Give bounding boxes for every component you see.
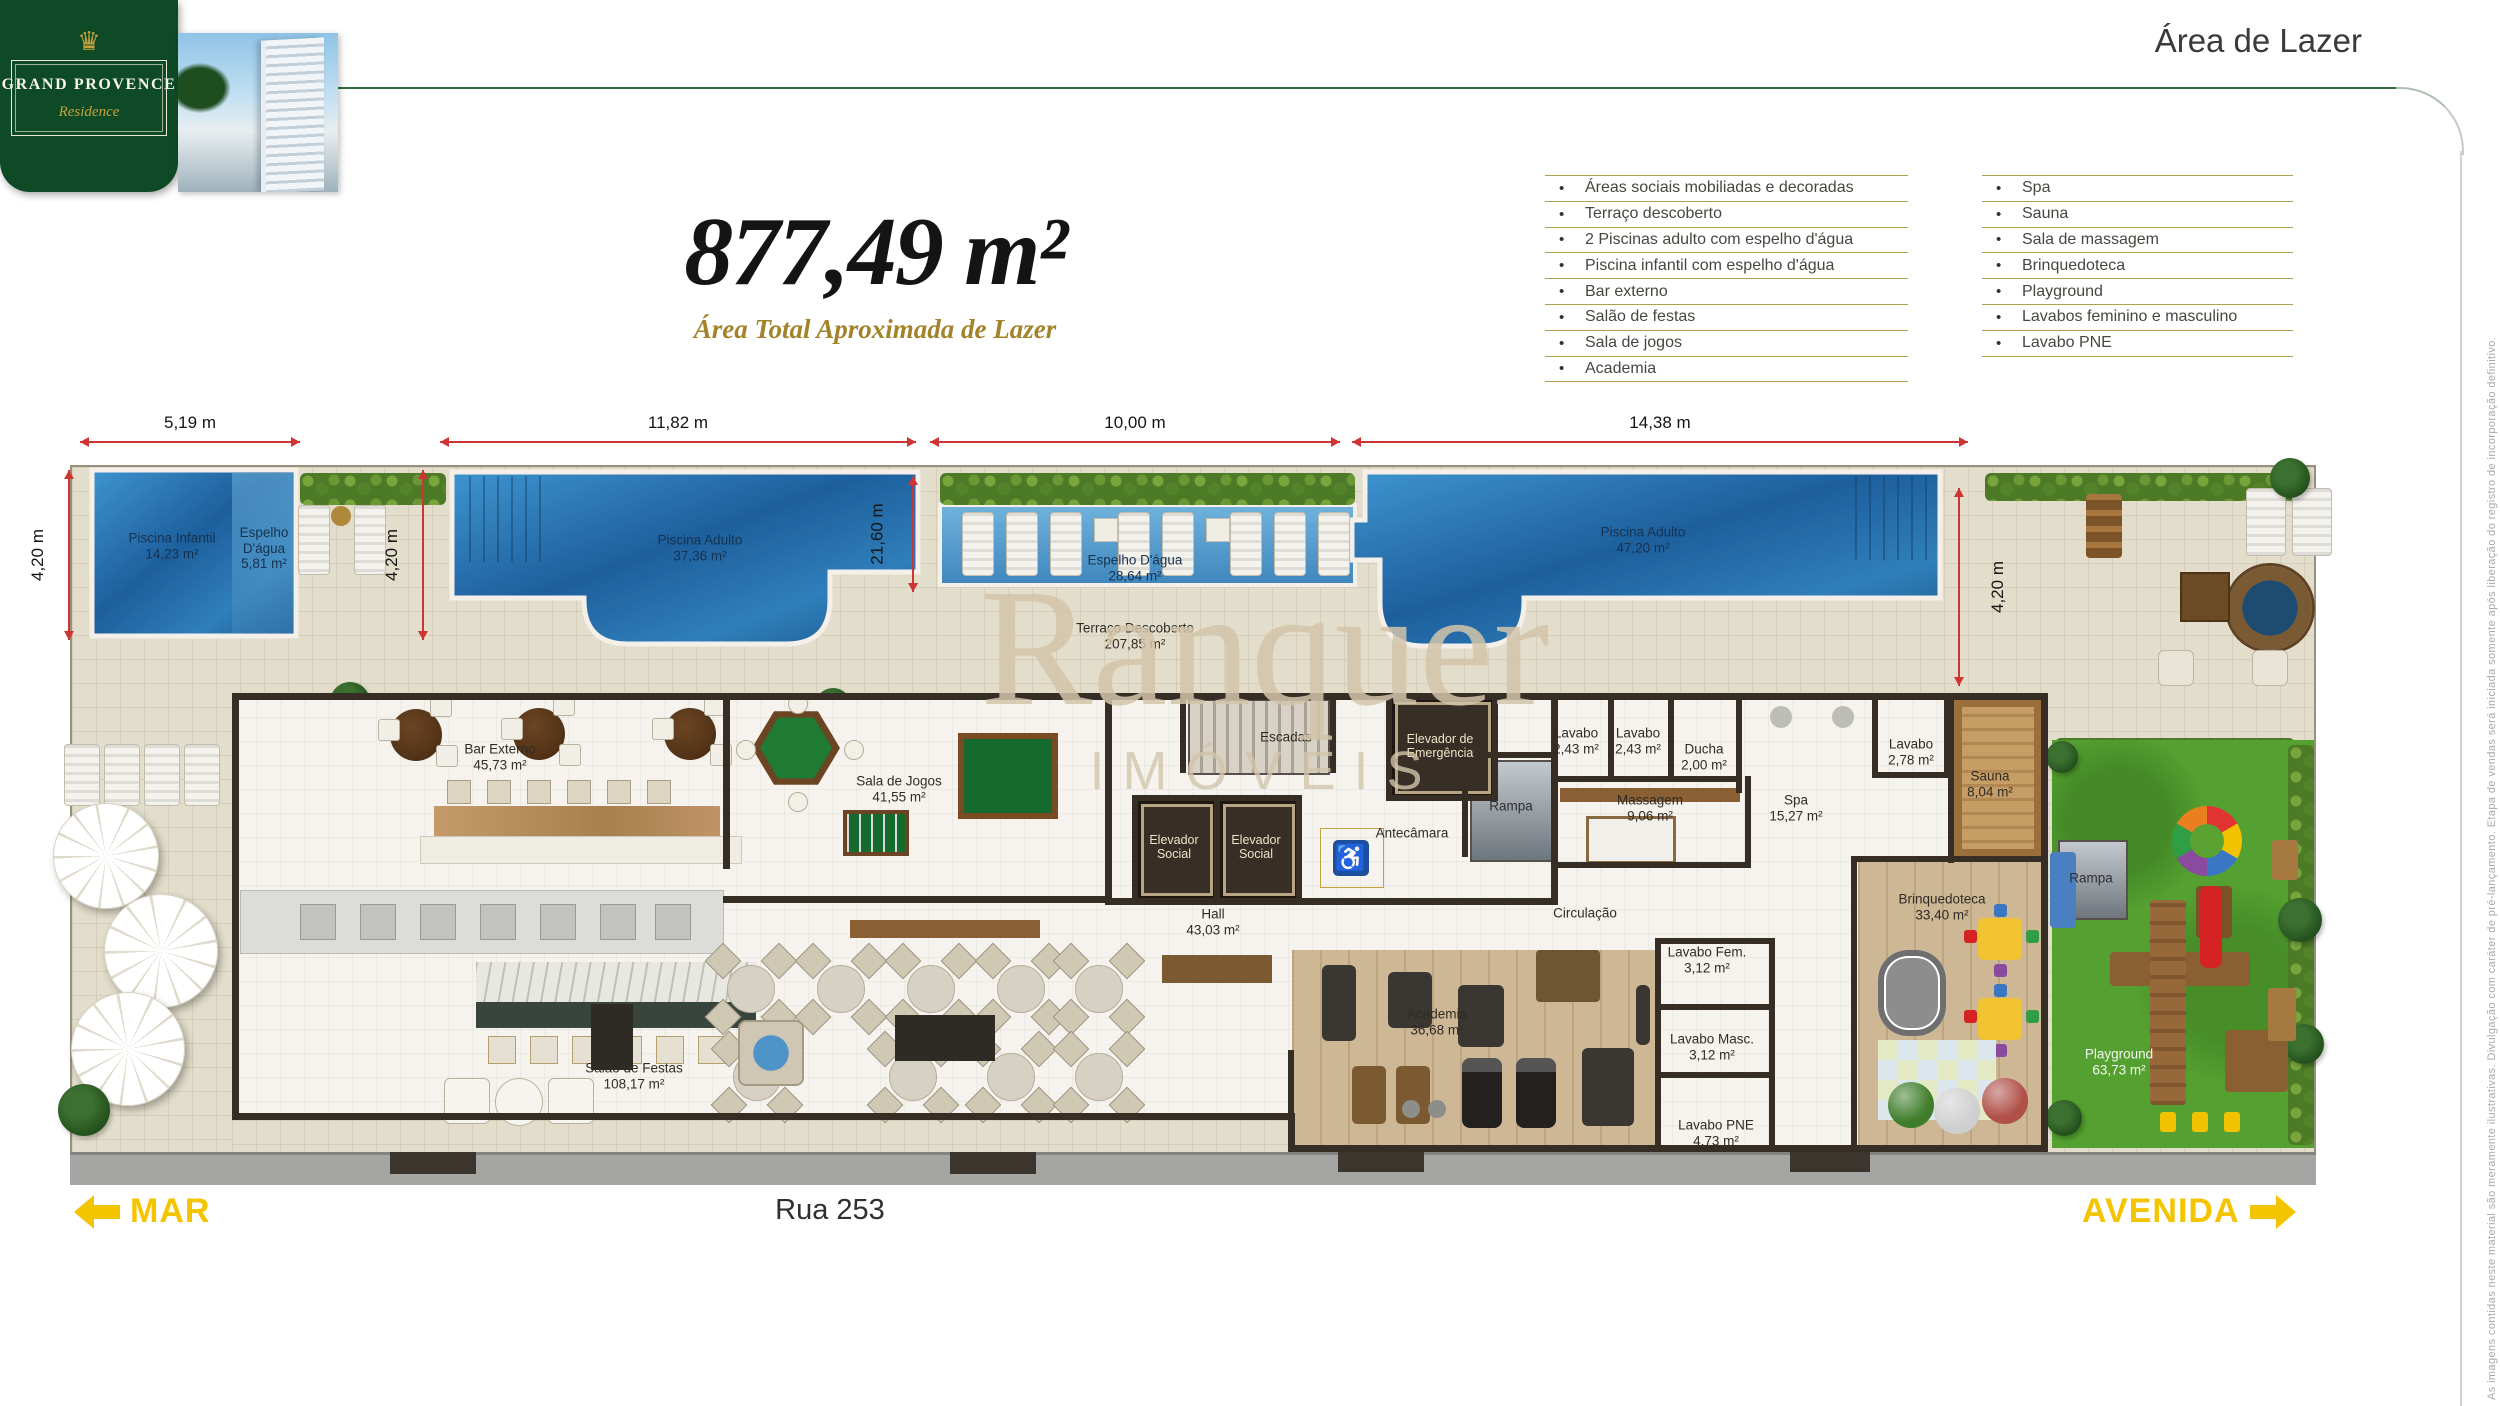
wall-segment [1655,1072,1775,1078]
wall-segment [723,896,1111,903]
feature-label: Playground [2022,283,2103,301]
mar-label: MAR [130,1192,210,1231]
dimension-value: 21,60 m [867,503,887,564]
buffet-table [895,1015,995,1061]
kids-chair [2026,1010,2039,1023]
plant-icon [2046,741,2078,773]
bullet-icon: • [1545,360,1585,377]
wall-segment [1851,856,1857,1152]
room-area: 41,55 m² [856,789,942,805]
feature-list-left: •Áreas sociais mobiliadas e decoradas•Te… [1545,175,1908,382]
room-label: Hall43,03 m² [1186,907,1239,938]
arrow-right-icon [2276,1195,2296,1229]
plant-icon [2278,898,2322,942]
room-name: Spa [1784,793,1808,808]
room-name: Piscina Infantil [128,531,215,546]
dimension-vertical: 4,20 m [422,470,424,640]
wall-segment [1386,795,1498,801]
wheelchair-icon: ♿ [1333,840,1369,876]
room-area: 45,73 m² [464,757,535,773]
dimension-vertical: 4,20 m [68,470,70,640]
room-area: 5,81 m² [229,556,299,572]
room-area: 8,04 m² [1967,784,2013,800]
room-name: Academia [1407,1007,1467,1022]
logo-frame [11,60,167,136]
brand-subtitle: Residence [0,104,178,121]
palm-tree-icon [178,52,244,124]
feature-item: •Sala de massagem [1982,227,2293,253]
bar-stool [527,780,551,804]
room-label: Salão de Festas108,17 m² [585,1061,683,1092]
kids-chair [1994,964,2007,977]
play-beam-v [2150,900,2186,1105]
sun-lounger [1050,512,1082,576]
pouf [1982,1078,2028,1124]
bar-chair [436,745,458,767]
appliance [420,904,456,940]
room-label: Antecâmara [1376,825,1449,841]
gym-machine [1636,985,1650,1045]
kids-table [1978,998,2022,1040]
appliance [300,904,336,940]
room-label: Lavabo2,43 m² [1546,726,1606,757]
dimension-value: 4,20 m [28,529,48,581]
room-label: Spa15,27 m² [1769,793,1822,824]
hall-sideboard [1162,955,1272,983]
bar-chair [652,718,674,740]
room-area: 2,43 m² [1608,741,1668,757]
plant-icon [2270,458,2310,498]
wall-segment [1105,898,1558,905]
room-label: Sala de Jogos41,55 m² [856,774,942,805]
media-console [850,920,1040,938]
gym-machine [1322,965,1356,1041]
sun-lounger [1230,512,1262,576]
room-name: Hall [1201,907,1224,922]
arrow-left-icon [74,1195,94,1229]
direction-avenida: AVENIDA [2082,1192,2296,1231]
sun-lounger [962,512,994,576]
exercise-ball [1428,1100,1446,1118]
feature-label: Sauna [2022,205,2068,223]
parasol-icon [53,803,159,909]
room-area: 28,64 m² [1088,568,1183,584]
appliance [360,904,396,940]
direction-mar: MAR [74,1192,210,1231]
room-area: 2,78 m² [1881,752,1941,768]
feature-item: •Playground [1982,278,2293,304]
feature-item: •Salão de festas [1545,304,1908,330]
frame-corner [2396,87,2464,155]
dining-table [907,965,955,1013]
room-area: 14,23 m² [128,546,215,562]
feature-label: Salão de festas [1585,308,1695,326]
dimension-value: 10,00 m [1104,413,1165,433]
room-label: Brinquedoteca33,40 m² [1898,892,1985,923]
room-name: Espelho D'água [240,525,289,556]
race-track-rug [1878,950,1946,1036]
room-area: 4,73 m² [1664,1133,1768,1149]
room-name: Sala de Jogos [856,774,942,789]
wall-segment [1745,776,1751,868]
pouf [1888,1082,1934,1128]
poker-chair [844,740,864,760]
room-area: 108,17 m² [585,1076,683,1092]
bar-stool [447,780,471,804]
pool-ladder [2086,494,2122,558]
room-name: Lavabo PNE [1678,1118,1754,1133]
spring-rider [2224,1112,2240,1132]
playground-hedge-right [2288,745,2314,1145]
total-area-caption: Área Total Aproximada de Lazer [545,314,1205,345]
room-area: 47,20 m² [1601,540,1686,556]
room-area: 3,12 m² [1661,960,1753,976]
wall-segment [1296,795,1302,898]
bar-stool [567,780,591,804]
room-name: Rampa [1489,798,1533,813]
bullet-icon: • [1982,206,2022,223]
bullet-icon: • [1982,309,2022,326]
wall-segment [1132,795,1138,898]
room-area: 207,85 m² [1076,636,1194,652]
building-photo [178,33,338,192]
door-mat [390,1152,476,1174]
treadmill [1516,1058,1556,1128]
side-table [1206,518,1230,542]
avenida-label: AVENIDA [2082,1192,2240,1231]
park-bench [2272,840,2298,880]
room-name: Massagem [1617,793,1683,808]
barbell-rack [1536,950,1600,1002]
feature-label: Spa [2022,179,2050,197]
room-label: Elevador Social [1141,833,1207,861]
wall-segment [232,1113,1294,1120]
room-label: Elevador de Emergência [1396,732,1484,760]
feature-list-right: •Spa•Sauna•Sala de massagem•Brinquedotec… [1982,175,2293,357]
armchair [2158,650,2194,686]
door-mat [1790,1150,1870,1172]
play-ring-hole [2190,824,2224,858]
header-rule [338,87,2396,89]
wall-segment [1288,1050,1294,1150]
bullet-icon: • [1545,335,1585,352]
room-area: 43,03 m² [1186,922,1239,938]
terrace-cut [232,1120,1288,1152]
room-area: 15,27 m² [1769,808,1822,824]
dimension-value: 11,82 m [648,413,708,433]
room-area: 9,06 m² [1617,808,1683,824]
wall-segment [1330,693,1336,773]
room-label: Elevador Social [1223,833,1289,861]
feature-item: •Piscina infantil com espelho d'água [1545,252,1908,278]
room-label: Ducha2,00 m² [1673,742,1735,773]
room-name: Antecâmara [1376,825,1449,840]
room-label: Espelho D'água5,81 m² [229,525,299,572]
armchair [2252,650,2288,686]
dimension-vertical: 21,60 m [912,476,914,592]
bullet-icon: • [1545,180,1585,197]
kids-chair [1964,930,1977,943]
room-name: Rampa [2069,870,2113,885]
room-label: Piscina Infantil14,23 m² [128,531,215,562]
street-label: Rua 253 [735,1194,925,1227]
room-label: Lavabo PNE4,73 m² [1664,1118,1768,1149]
feature-item: •Sala de jogos [1545,330,1908,356]
room-name: Elevador Social [1149,833,1198,861]
sun-lounger [1274,512,1306,576]
bullet-icon: • [1545,231,1585,248]
bar-stool [647,780,671,804]
wall-segment [1872,693,1878,777]
wall-segment [1769,938,1775,1152]
door-mat [1338,1150,1424,1172]
kids-chair [1964,1010,1977,1023]
dining-table [1075,965,1123,1013]
spa-pillow [1832,706,1854,728]
room-name: Terraço Descoberto [1076,621,1194,636]
feature-item: •Academia [1545,356,1908,382]
bullet-icon: • [1982,335,2022,352]
dining-table [817,965,865,1013]
feature-label: Áreas sociais mobiliadas e decoradas [1585,179,1854,197]
room-label: Escadas [1260,729,1312,745]
dimension-value: 14,38 m [1629,413,1690,433]
wall-segment [232,693,2048,700]
room-name: Piscina Adulto [1601,525,1686,540]
foosball-table [843,810,909,856]
sauna-towel [2050,852,2076,928]
arrow-left-bar [94,1205,120,1219]
wall-segment [1555,776,1741,782]
sun-lounger [64,744,100,806]
room-label: Lavabo2,43 m² [1608,726,1668,757]
wall-segment [723,693,730,869]
legal-disclaimer: As imagens contidas neste material são m… [2486,110,2498,1400]
feature-label: Brinquedoteca [2022,257,2125,275]
pouf [1934,1088,1980,1134]
sun-lounger [1318,512,1350,576]
spa-pillow [1770,706,1792,728]
exercise-ball [1402,1100,1420,1118]
wall-segment [1386,693,1392,801]
poker-chair [788,792,808,812]
treadmill [1462,1058,1502,1128]
room-name: Escadas [1260,729,1312,744]
room-name: Lavabo Fem. [1668,945,1747,960]
feature-item: •Sauna [1982,201,2293,227]
feature-item: •Lavabo PNE [1982,330,2293,356]
room-label: Playground63,73 m² [2085,1047,2153,1078]
wall-segment [1492,693,1498,801]
feature-item: •Lavabos feminino e masculino [1982,304,2293,330]
room-name: Piscina Adulto [658,533,743,548]
room-label: Circulação [1553,905,1617,921]
round-table-gold [331,506,351,526]
red-slide [2200,886,2222,968]
bullet-icon: • [1545,283,1585,300]
room-name: Sauna [1970,769,2009,784]
sun-lounger [298,505,330,575]
feature-label: Lavabo PNE [2022,334,2112,352]
room-name: Brinquedoteca [1898,892,1985,907]
park-bench [2268,988,2296,1041]
bar-counter [434,806,720,836]
room-name: Elevador Social [1231,833,1280,861]
room-area: 3,12 m² [1660,1047,1764,1063]
bullet-icon: • [1982,180,2022,197]
wall-segment [1462,752,1468,857]
dimension-horizontal: 10,00 m [930,441,1340,443]
frame-right-rule [2460,151,2462,1406]
room-label: Sauna8,04 m² [1967,769,2013,800]
feature-label: 2 Piscinas adulto com espelho d'água [1585,231,1853,249]
room-name: Bar Externo [464,742,535,757]
sun-lounger [104,744,140,806]
room-name: Salão de Festas [585,1061,683,1076]
room-label: Piscina Adulto47,20 m² [1601,525,1686,556]
appliance [540,904,576,940]
sun-lounger [2292,488,2332,556]
feature-item: •Spa [1982,175,2293,201]
appliance [600,904,636,940]
hot-tub [2228,566,2312,650]
room-label: Rampa [1489,798,1533,814]
brand-logo: ♛ GRAND PROVENCE Residence [0,0,178,192]
room-name: Ducha [1684,742,1723,757]
feature-item: •2 Piscinas adulto com espelho d'água [1545,227,1908,253]
dimension-horizontal: 11,82 m [440,441,916,443]
sun-lounger [2246,488,2286,556]
room-area: 36,68 m² [1407,1022,1467,1038]
wall-segment [232,693,239,1120]
gym-machine [1582,1048,1634,1126]
dimension-value: 5,19 m [164,413,216,433]
room-label: Rampa [2069,870,2113,886]
plant-icon [58,1084,110,1136]
feature-label: Piscina infantil com espelho d'água [1585,257,1834,275]
feature-label: Lavabos feminino e masculino [2022,308,2237,326]
room-area: 37,36 m² [658,548,743,564]
room-label: Bar Externo45,73 m² [464,742,535,773]
kids-chair [1994,904,2007,917]
page-title: Área de Lazer [2155,22,2362,60]
sun-lounger [1006,512,1038,576]
dimension-horizontal: 14,38 m [1352,441,1968,443]
feature-item: •Terraço descoberto [1545,201,1908,227]
dimension-horizontal: 5,19 m [80,441,300,443]
wall-segment [1655,938,1775,944]
dining-table [727,965,775,1013]
bullet-icon: • [1545,309,1585,326]
spring-rider [2192,1112,2208,1132]
bullet-icon: • [1545,257,1585,274]
bar-stool [487,780,511,804]
square-table [2180,572,2230,622]
bar-chair [501,718,523,740]
feature-label: Terraço descoberto [1585,205,1722,223]
room-name: Lavabo [1889,737,1933,752]
feature-item: •Áreas sociais mobiliadas e decoradas [1545,175,1908,201]
bullet-icon: • [1982,257,2022,274]
room-name: Circulação [1553,905,1617,920]
spring-rider [2160,1112,2176,1132]
dimension-value: 4,20 m [1988,561,2008,613]
room-name: Lavabo [1616,726,1660,741]
room-label: Terraço Descoberto207,85 m² [1076,621,1194,652]
feature-item: •Brinquedoteca [1982,252,2293,278]
appliance [655,904,691,940]
bar-stool [607,780,631,804]
side-table [1094,518,1118,542]
feature-label: Sala de jogos [1585,334,1682,352]
room-area: 33,40 m² [1898,907,1985,923]
room-label: Lavabo2,78 m² [1881,737,1941,768]
room-area: 2,00 m² [1673,757,1735,773]
wall-segment [1180,693,1186,773]
plant-icon [2046,1100,2082,1136]
bar-ledge [420,836,742,864]
room-label: Massagem9,06 m² [1617,793,1683,824]
wall-segment [1872,772,1950,778]
room-label: Piscina Adulto37,36 m² [658,533,743,564]
room-label: Lavabo Fem.3,12 m² [1661,945,1753,976]
dimension-vertical: 4,20 m [1958,488,1960,686]
room-area: 63,73 m² [2085,1062,2153,1078]
sun-lounger [184,744,220,806]
bar-chair [378,719,400,741]
feature-item: •Bar externo [1545,278,1908,304]
bullet-icon: • [1982,231,2022,248]
tower-illustration [261,38,324,192]
brochure-page: ♛ GRAND PROVENCE Residence Área de Lazer… [0,0,2500,1406]
wall-segment [1948,693,1954,863]
wall-segment [1214,795,1220,898]
gym-bench [1352,1066,1386,1124]
kids-table [1978,918,2022,960]
room-label: Lavabo Masc.3,12 m² [1660,1032,1764,1063]
sun-lounger [144,744,180,806]
bar-chair [530,1036,558,1064]
poker-chair [736,740,756,760]
brand-name: GRAND PROVENCE [0,76,178,94]
room-label: Espelho D'água28,64 m² [1088,553,1183,584]
bullet-icon: • [1982,283,2022,300]
bar-chair [559,744,581,766]
room-label: Academia36,68 m² [1407,1007,1467,1038]
kids-chair [1994,984,2007,997]
feature-label: Academia [1585,360,1656,378]
parasol-icon [104,894,218,1008]
bullet-icon: • [1545,206,1585,223]
room-name: Espelho D'água [1088,553,1183,568]
arrow-right-bar [2250,1205,2276,1219]
feature-label: Sala de massagem [2022,231,2159,249]
door-mat [950,1152,1036,1174]
billiard-table [958,733,1058,819]
kids-chair [2026,930,2039,943]
dimension-value: 4,20 m [382,529,402,581]
dining-table [997,965,1045,1013]
wall-segment [1105,693,1112,905]
wall-segment [1851,856,2048,862]
crown-icon: ♛ [0,28,178,54]
hedge-strip [940,473,1355,505]
bar-chair [488,1036,516,1064]
appliance [480,904,516,940]
total-area-value: 877,49 m² [545,198,1205,306]
feature-label: Bar externo [1585,283,1668,301]
room-name: Lavabo [1554,726,1598,741]
